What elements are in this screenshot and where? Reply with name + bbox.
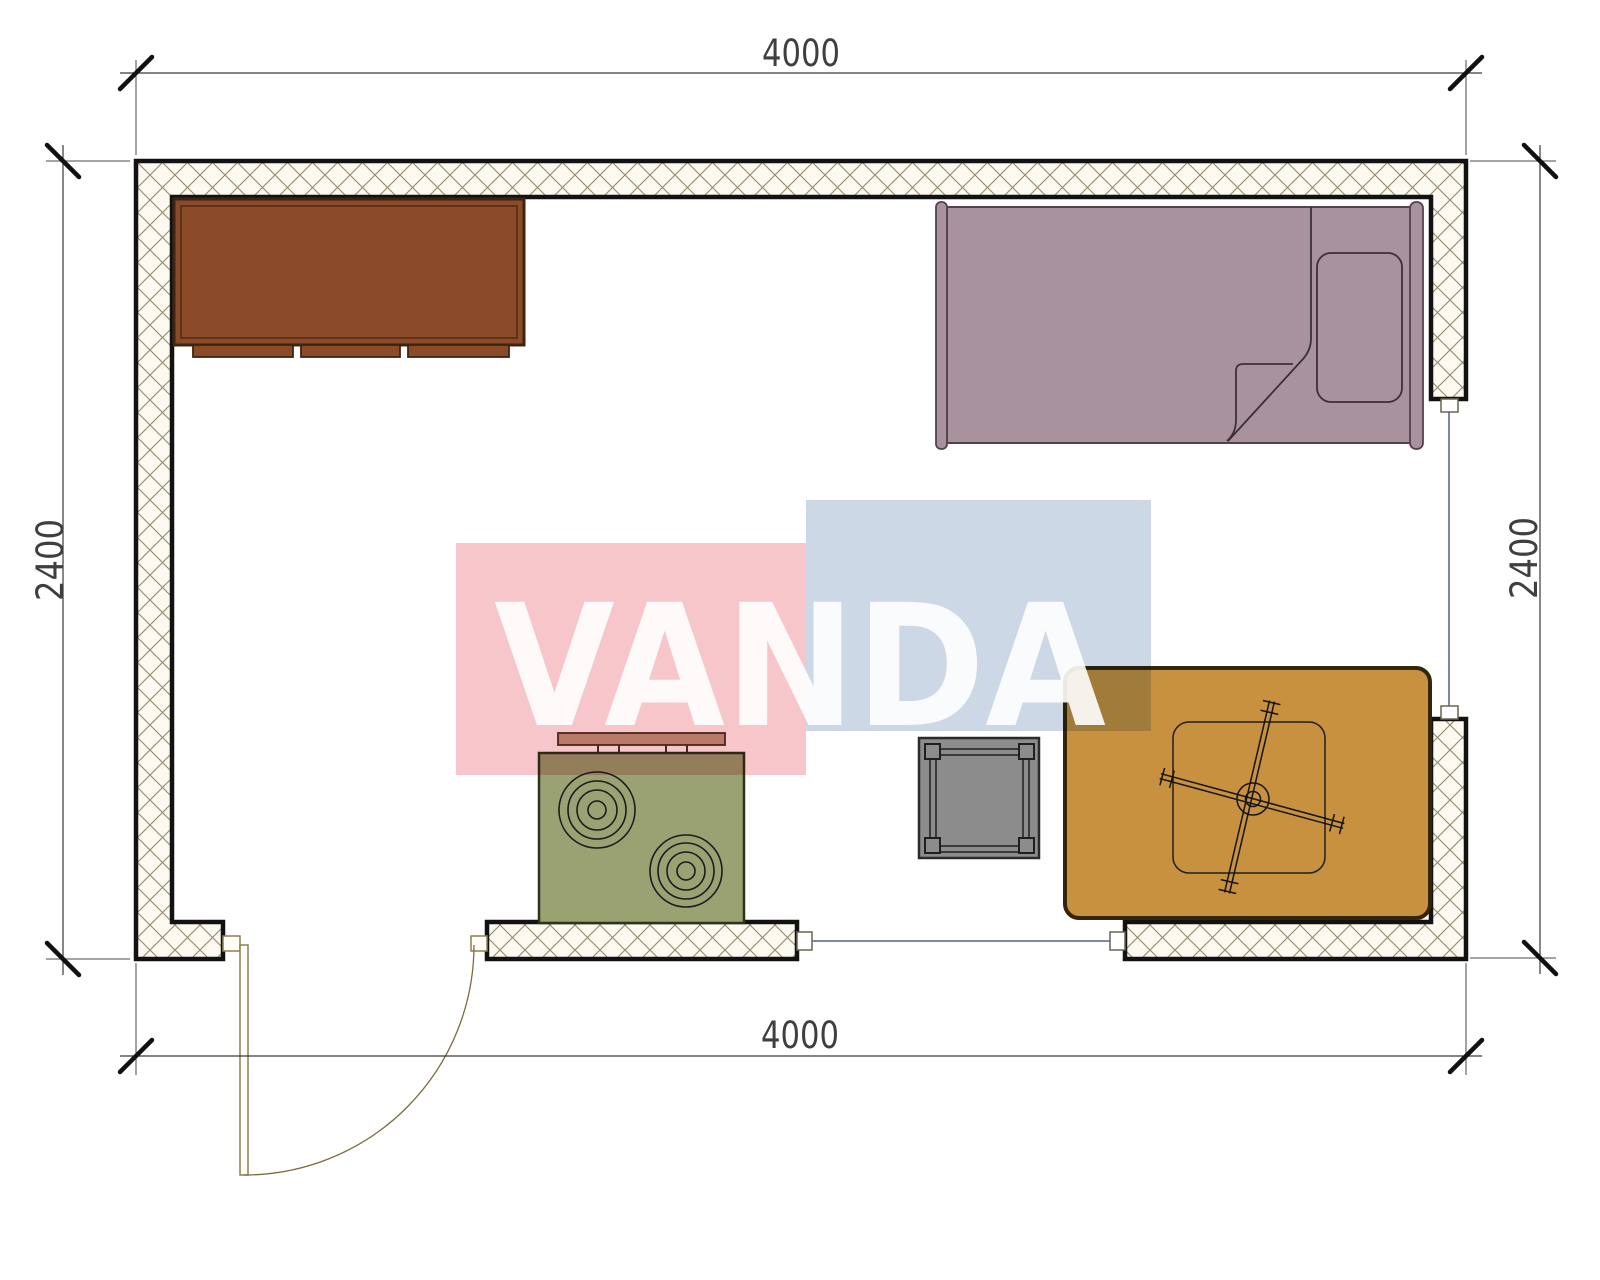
door-jamb-left [223, 936, 240, 951]
dimension-top: 4000 [120, 32, 1482, 155]
floor-plan-page: VANDA 4000 4000 2400 2400 [0, 0, 1600, 1280]
window-right-jamb-bottom [1441, 706, 1458, 719]
watermark-text: VANDA [494, 568, 1106, 765]
bed-footboard [936, 202, 947, 449]
dimension-left: 2400 [29, 145, 130, 975]
dim-label-right: 2400 [1503, 517, 1546, 599]
window-bottom-jamb-left [797, 932, 812, 950]
window-bottom [797, 932, 1125, 950]
cabinet-body [174, 199, 524, 345]
dimension-bottom: 4000 [120, 963, 1482, 1075]
bed-pillow [1317, 253, 1402, 402]
dim-label-left: 2400 [29, 519, 72, 601]
door-leaf [240, 945, 248, 1175]
dim-label-top: 4000 [762, 32, 840, 75]
dimension-right: 2400 [1470, 145, 1556, 974]
floor-plan-drawing: VANDA 4000 4000 2400 2400 [0, 0, 1600, 1280]
watermark: VANDA [456, 500, 1151, 775]
cabinet [174, 199, 524, 357]
stove-body [539, 753, 744, 923]
window-right [1441, 399, 1458, 719]
dim-label-bottom: 4000 [761, 1014, 839, 1057]
wall-bottom-stove-segment [487, 922, 797, 959]
cabinet-foot-2 [301, 345, 400, 357]
bed-headboard [1410, 202, 1423, 449]
door-swing-arc [244, 945, 474, 1175]
bed [936, 202, 1423, 449]
cabinet-foot-1 [193, 345, 293, 357]
window-bottom-jamb-right [1110, 932, 1125, 950]
window-right-jamb-top [1441, 399, 1458, 412]
cabinet-foot-3 [408, 345, 509, 357]
